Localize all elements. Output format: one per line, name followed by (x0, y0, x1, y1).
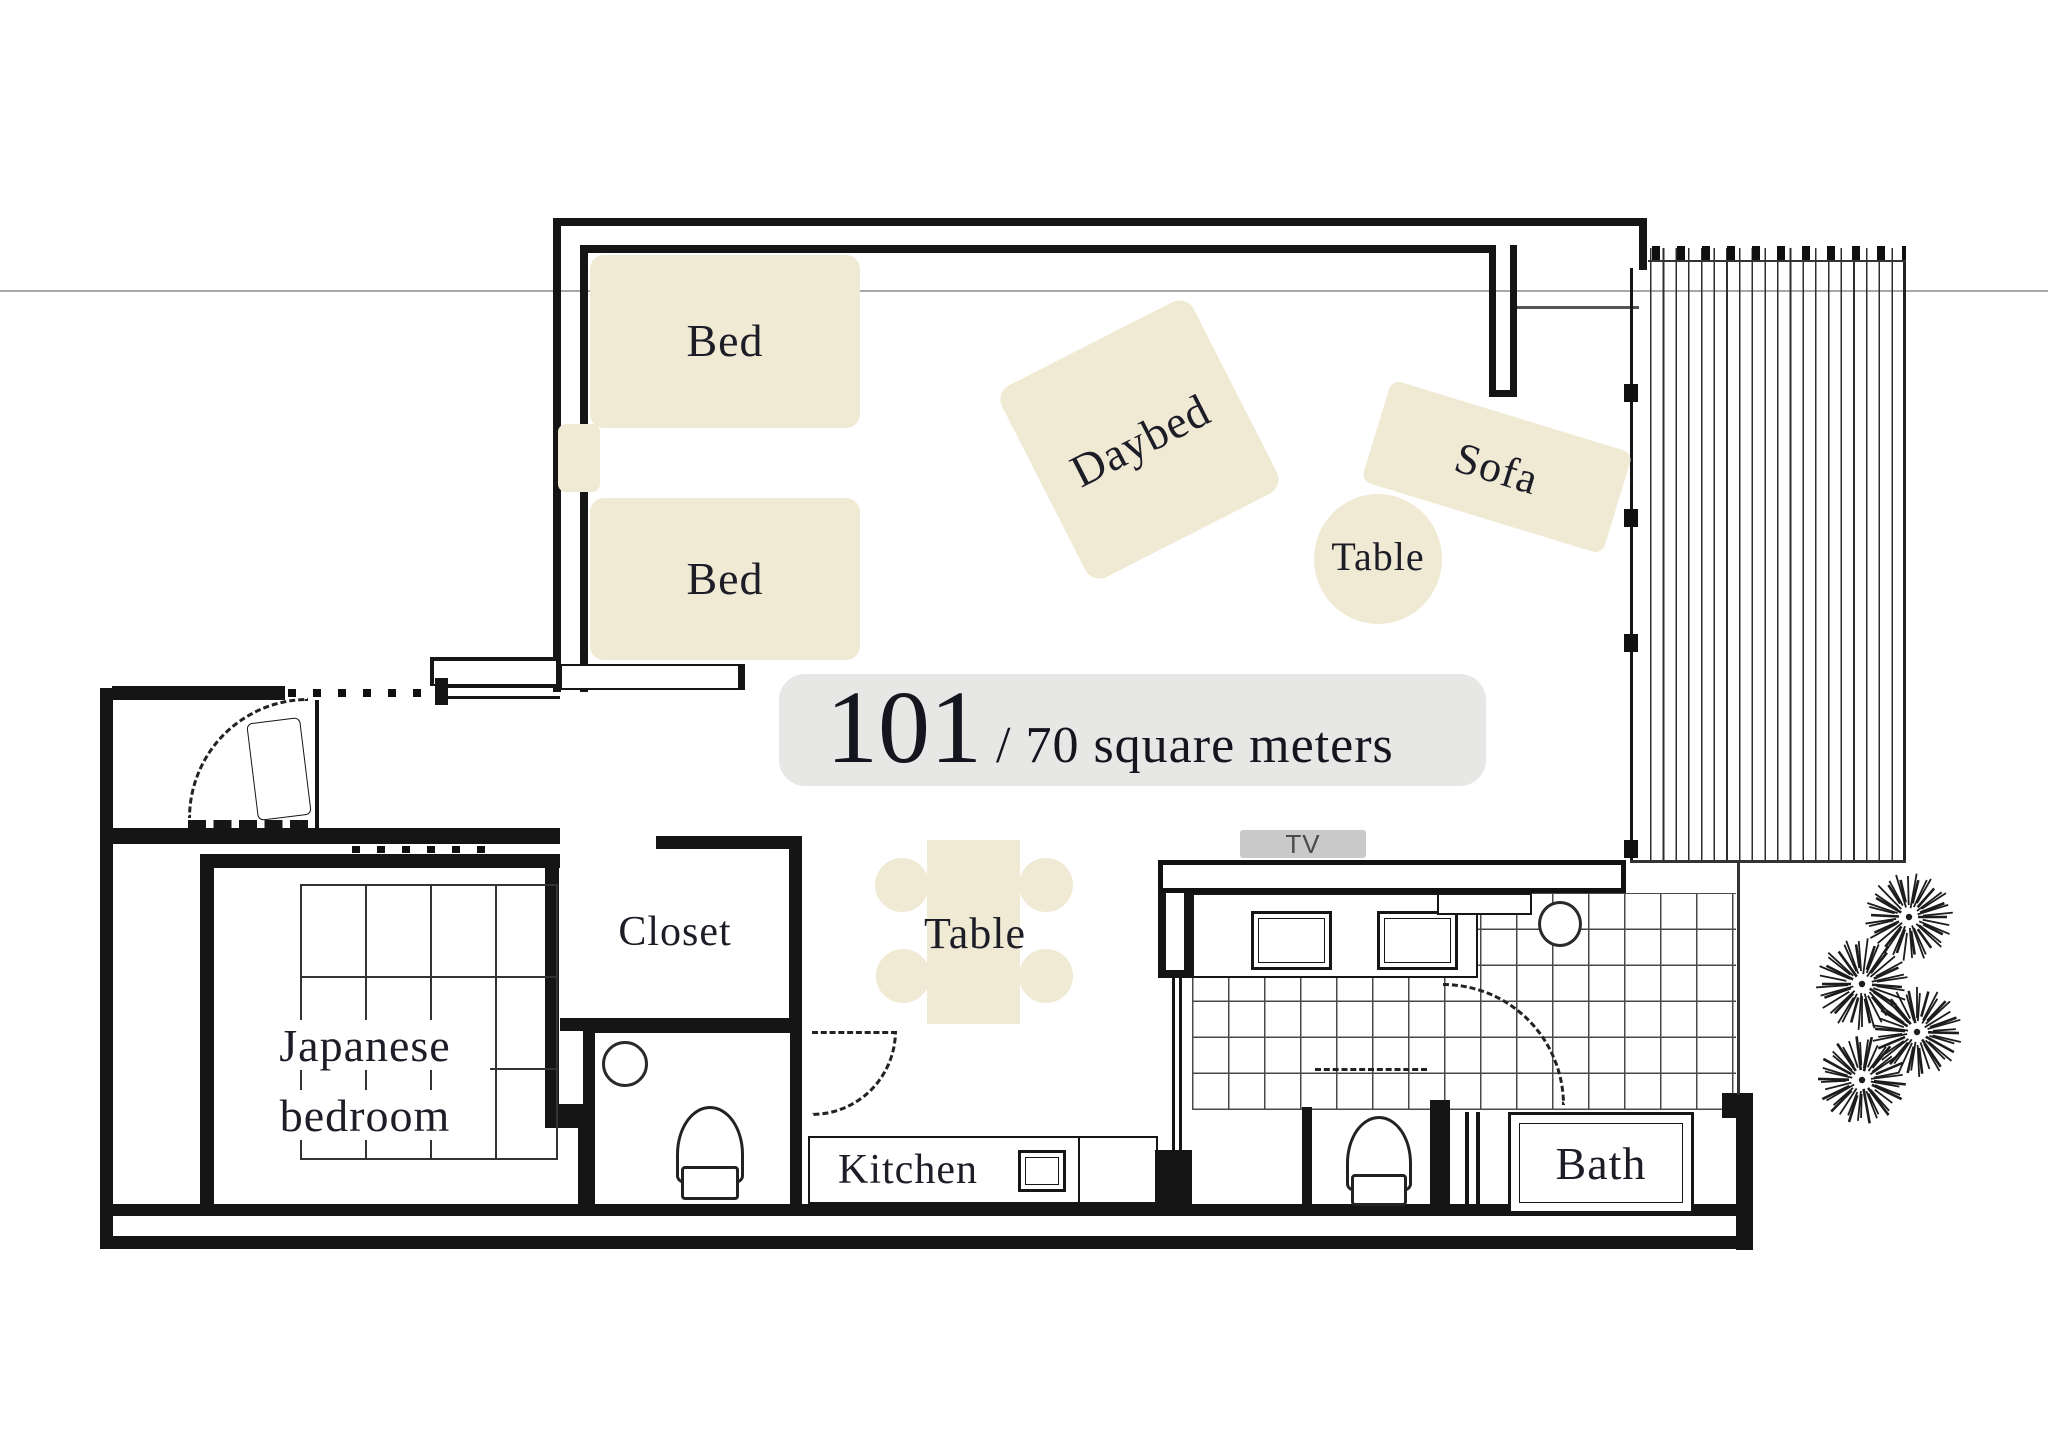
wall-top-outer-corner (1639, 218, 1647, 270)
wall-entry-bottom (112, 828, 560, 844)
wall-bottom-inner (112, 1204, 1736, 1216)
japanese-bedroom-label-line1: Japanese (240, 1020, 490, 1070)
side-table-label: Table (1314, 528, 1442, 584)
toilet2-door-dashes (1315, 1068, 1427, 1071)
balcony-post (1624, 634, 1638, 652)
wall-jb-top (200, 854, 560, 868)
japanese-bedroom-label-line2: bedroom (240, 1090, 490, 1140)
entry-partition-stub (315, 700, 319, 830)
wall-toilet1-left (583, 1025, 595, 1205)
wall-closet-top (656, 836, 802, 849)
unit-badge-text: 101 / 70 square meters (826, 674, 1466, 786)
wall-toilet1-top (583, 1025, 802, 1033)
closet-label: Closet (580, 905, 770, 959)
balcony-post (1624, 384, 1638, 402)
dining-chair (1019, 858, 1073, 912)
wall-entry-thin (448, 696, 560, 699)
unit-area: / 70 square meters (996, 696, 1394, 796)
wall-toilet2-right (1430, 1100, 1450, 1210)
wall-right-outer (1736, 1095, 1753, 1250)
wall-wash-bottom-block (1155, 1150, 1192, 1205)
floor-plan-101: Japanese bedroom Closet Kitchen Bath (0, 0, 2048, 1446)
deck-slats (1650, 248, 1906, 862)
wall-toilet1-right (790, 1029, 802, 1205)
deck-side-line (1737, 862, 1740, 1095)
wall-wash-left-b (1184, 893, 1192, 978)
toilet-tank (681, 1166, 739, 1200)
bed-2-label: Bed (590, 550, 860, 606)
window-sill-cap (738, 664, 745, 690)
deck-top-line (1648, 260, 1906, 262)
wall-right-corner-block (1722, 1093, 1753, 1118)
wall-bottom-outer (100, 1236, 1753, 1249)
wall-bath-lip-a (1465, 1112, 1469, 1210)
toilet2-tank (1351, 1174, 1407, 1206)
wall-bath-lip-b (1476, 1112, 1480, 1210)
balcony-post (1624, 509, 1638, 527)
balcony-post (1624, 840, 1638, 858)
wall-wash-thin-a (1172, 978, 1175, 1150)
round-sink-icon (1538, 901, 1582, 947)
wall-wash-thin-b (1179, 978, 1182, 1150)
wall-jog-cap (1489, 390, 1517, 397)
wall-jb-left (200, 854, 214, 1210)
washer-icon (1251, 911, 1332, 970)
sink-icon (602, 1041, 648, 1087)
wall-closet-right (789, 836, 802, 1031)
window-sill-bar (560, 664, 745, 690)
wall-wash-left-a (1158, 893, 1166, 978)
deck-bottom-line (1630, 860, 1906, 863)
dining-chair (875, 858, 929, 912)
window-sill-line (1517, 306, 1639, 309)
wall-top-inner (583, 245, 1489, 253)
kitchen-divider (1078, 1136, 1080, 1204)
wall-jog-left (1489, 245, 1496, 395)
wall-wash-connector (1158, 970, 1192, 978)
dining-table-label: Table (890, 905, 1060, 961)
stove-icon (1018, 1150, 1066, 1192)
wall-toilet2-left (1302, 1107, 1312, 1210)
wall-jog-right (1510, 245, 1517, 397)
wall-bar-a (430, 657, 560, 688)
jb-threshold-dashes (352, 846, 488, 853)
kitchen-label: Kitchen (818, 1144, 998, 1196)
washbasin-icon (1377, 911, 1458, 970)
tatami-line (495, 886, 497, 1158)
wall-top-outer (553, 218, 1647, 226)
washroom-niche (1437, 893, 1532, 915)
unit-number: 101 (826, 674, 982, 782)
plant-icon (1814, 1032, 1910, 1128)
tatami-line (302, 976, 556, 978)
tv-label: TV (1240, 830, 1366, 858)
hall-door-swing-arc (812, 1031, 897, 1116)
wall-left-outer-lower (100, 688, 113, 1249)
bath-label: Bath (1508, 1128, 1694, 1198)
balcony-rail-line (1630, 268, 1633, 862)
nightstand (558, 424, 600, 492)
wall-entry-step (435, 678, 448, 705)
entry-threshold-dashes (288, 689, 442, 697)
bed-1-label: Bed (590, 312, 860, 368)
tv-wall (1158, 860, 1626, 893)
